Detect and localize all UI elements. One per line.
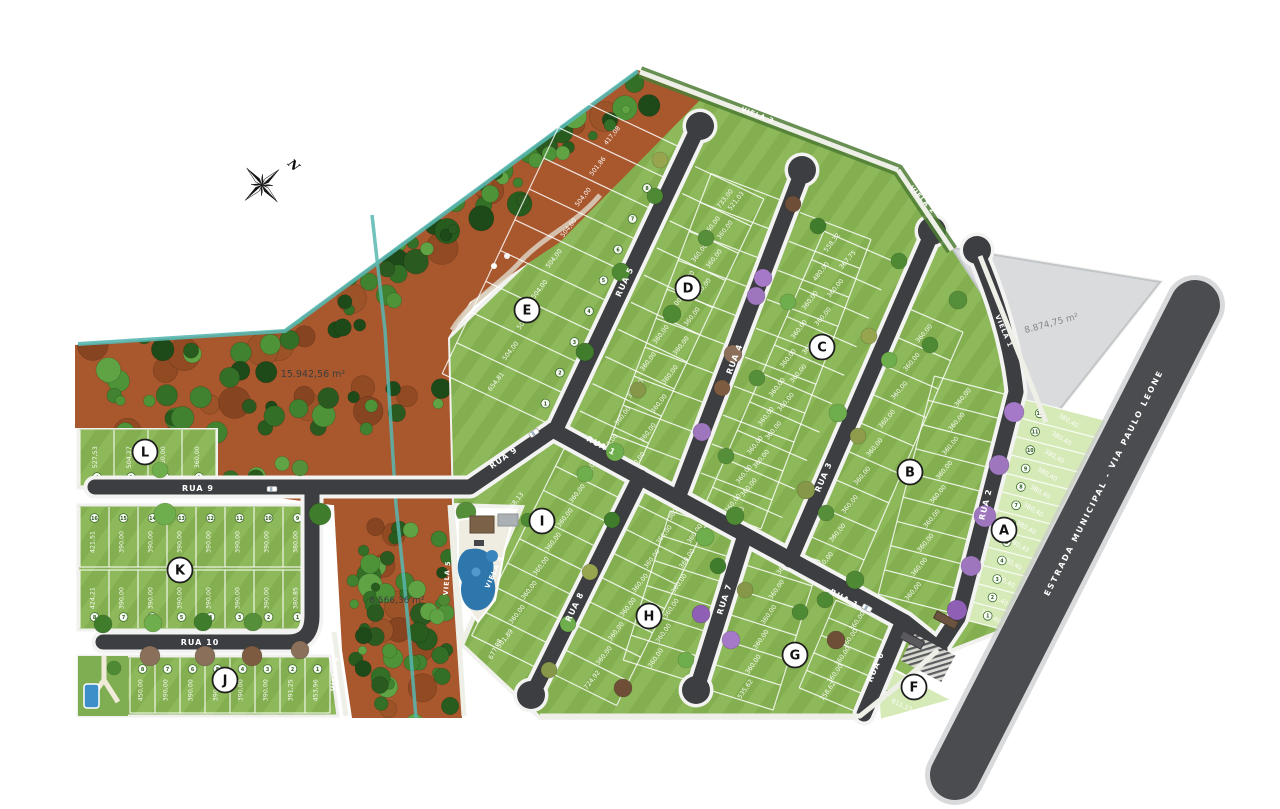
block-letter: A — [999, 524, 1009, 539]
tree-icon — [380, 551, 394, 565]
tree-icon — [334, 319, 351, 336]
tree-icon — [327, 267, 346, 286]
block-letter: E — [523, 304, 532, 319]
tree-icon — [638, 95, 660, 117]
tree-icon — [338, 295, 352, 309]
tree-icon — [171, 406, 194, 429]
tree-icon — [556, 146, 570, 160]
tree-icon — [469, 206, 494, 231]
block-letter: J — [222, 674, 228, 689]
lot-area-text: 390,00 — [177, 587, 184, 609]
tree-icon — [358, 646, 367, 655]
tree-icon — [256, 361, 277, 382]
tree-icon — [367, 605, 384, 622]
tree-icon — [190, 386, 212, 408]
tree-icon — [382, 644, 397, 659]
lot-area-text: 390,00 — [238, 679, 245, 701]
tree-icon — [275, 456, 290, 471]
tree-icon — [107, 661, 121, 675]
tree-icon — [431, 531, 447, 547]
lot-number-text: 10 — [1027, 448, 1034, 454]
tree-icon — [513, 178, 523, 188]
tree-icon — [714, 380, 730, 396]
lot-number-text: 11 — [236, 516, 243, 522]
lot-number-text: 15 — [120, 516, 127, 522]
tree-icon — [360, 422, 373, 435]
tree-icon — [96, 358, 121, 383]
preservation-area-label: 15.942,56 m² — [281, 369, 346, 380]
tree-icon — [614, 679, 632, 697]
lot-number-text: 7 — [1014, 503, 1017, 509]
tree-icon — [184, 343, 199, 358]
tree-icon — [989, 455, 1009, 475]
tree-icon — [349, 245, 368, 264]
tree-icon — [749, 370, 765, 386]
tree-icon — [152, 462, 168, 478]
leisure-structure — [474, 540, 484, 546]
tree-icon — [827, 631, 845, 649]
tree-icon — [242, 399, 256, 413]
tree-icon — [516, 194, 529, 207]
park-pool — [84, 684, 99, 708]
tree-icon — [747, 287, 765, 305]
lot-number-text: 2 — [267, 615, 270, 621]
tree-icon — [371, 583, 380, 592]
block-circle-c: C — [810, 335, 835, 360]
tree-icon — [374, 697, 388, 711]
site-plan: 527,534504,273360,002360,001421,5116390,… — [0, 0, 1280, 809]
block-circle-l: L — [133, 440, 158, 465]
car-icon — [267, 486, 277, 491]
tree-icon — [881, 352, 897, 368]
tree-icon — [309, 503, 331, 525]
tree-icon — [360, 554, 379, 573]
block-circle-b: B — [898, 460, 923, 485]
tree-icon — [140, 646, 160, 666]
lot-number-text: 3 — [573, 340, 576, 346]
tree-icon — [195, 646, 215, 666]
tree-icon — [692, 605, 710, 623]
tree-icon — [622, 105, 630, 113]
lot-number-text: 5 — [602, 278, 605, 284]
tree-icon — [949, 291, 967, 309]
tree-icon — [291, 641, 309, 659]
tree-icon — [792, 604, 808, 620]
tree-icon — [647, 188, 663, 204]
lot-number-text: 16 — [91, 516, 98, 522]
tree-icon — [115, 396, 125, 406]
tree-icon — [154, 503, 176, 525]
lot-area-text: 390,00 — [148, 587, 155, 609]
map-polygon — [245, 168, 262, 187]
tree-icon — [431, 379, 451, 399]
street-label: RUA 9 — [182, 484, 214, 493]
lot-area-text: 390,00 — [264, 587, 271, 609]
block-letter: B — [905, 466, 915, 481]
tree-icon — [151, 338, 174, 361]
block-circle-h: H — [637, 604, 662, 629]
lot-area-text: 360,00 — [194, 446, 201, 468]
soil-patch — [367, 518, 385, 536]
block-circle-j: J — [213, 668, 238, 693]
lot-number-text: 5 — [180, 615, 183, 621]
lot-number-text: 10 — [265, 516, 272, 522]
tree-icon — [861, 328, 877, 344]
block-letter: K — [175, 564, 186, 579]
tree-icon — [432, 647, 449, 664]
block-circle-a: A — [992, 518, 1017, 543]
block-letter: H — [644, 610, 655, 625]
lot-area-text: 390,00 — [119, 587, 126, 609]
block-circle-k: K — [168, 558, 193, 583]
culdesac — [788, 156, 816, 184]
pocket-park — [78, 656, 128, 716]
map-polygon — [262, 183, 279, 202]
culdesac — [963, 236, 991, 264]
tree-icon — [292, 460, 308, 476]
lot-number-text: 2 — [291, 667, 294, 673]
swimming-pool — [474, 592, 490, 608]
lot-area-text: 390,00 — [148, 531, 155, 553]
block-letter: D — [683, 282, 694, 297]
lot-area-text: 390,00 — [206, 587, 213, 609]
lot-area-text: 390,00 — [263, 679, 270, 701]
tree-icon — [355, 628, 371, 644]
tree-icon — [144, 395, 156, 407]
tree-icon — [818, 505, 834, 521]
tree-icon — [242, 646, 262, 666]
lot-area-text: 391,25 — [288, 679, 295, 701]
lot-area-text: 390,00 — [235, 531, 242, 553]
tree-icon — [354, 319, 366, 331]
tree-icon — [696, 528, 714, 546]
lot-number-text: 1 — [544, 401, 547, 407]
tree-icon — [582, 564, 598, 580]
tree-icon — [318, 388, 339, 409]
site-plan-map: 527,534504,273360,002360,001421,5116390,… — [0, 0, 1280, 809]
block-letter: C — [817, 341, 827, 356]
culdesac — [517, 681, 545, 709]
lot-number-text: 2 — [558, 371, 561, 377]
block-letter: L — [141, 446, 149, 461]
lot-number-text: 7 — [122, 615, 125, 621]
tree-icon — [482, 185, 499, 202]
tree-icon — [441, 697, 458, 714]
tree-icon — [1004, 402, 1024, 422]
lot-area-text: 390,00 — [206, 531, 213, 553]
lot-number-text: 3 — [996, 577, 999, 583]
tree-icon — [698, 230, 714, 246]
lot-number-text: 3 — [238, 615, 241, 621]
lot-number-text: 12 — [207, 516, 214, 522]
tree-icon — [576, 343, 594, 361]
street-label: RUA 10 — [181, 638, 220, 647]
tree-icon — [386, 293, 401, 308]
tree-icon — [652, 152, 668, 168]
tree-icon — [718, 448, 734, 464]
lot-number-text: 2 — [991, 595, 994, 601]
tree-icon — [722, 631, 740, 649]
tree-icon — [754, 269, 772, 287]
block-letter: I — [540, 515, 545, 530]
lot-number-text: 7 — [166, 667, 169, 673]
clubhouse-building — [470, 516, 494, 533]
lot-number-text: 3 — [266, 667, 269, 673]
block-letter: G — [790, 649, 801, 664]
lot-number-text: 1 — [316, 667, 319, 673]
block-circle-e: E — [515, 298, 540, 323]
tree-icon — [433, 399, 443, 409]
tree-icon — [372, 677, 389, 694]
lot-area-text: 453,96 — [313, 679, 320, 701]
tree-icon — [144, 614, 162, 632]
tree-icon — [663, 305, 681, 323]
tree-icon — [348, 391, 360, 403]
culdesac — [686, 112, 714, 140]
tree-icon — [264, 406, 285, 427]
lot-area-text: 380,85 — [293, 587, 300, 609]
lot-number-text: 7 — [631, 217, 634, 223]
lot-area-text: 421,51 — [90, 531, 97, 553]
tree-icon — [737, 582, 753, 598]
block-circle-f: F — [902, 675, 927, 700]
lot-area-text: 390,00 — [264, 531, 271, 553]
lot-area-text: 527,53 — [92, 446, 99, 468]
tree-icon — [350, 599, 359, 608]
compass-north-label: N — [284, 156, 303, 175]
tree-icon — [365, 400, 378, 413]
tree-icon — [379, 261, 395, 277]
lot-area-text: 380,00 — [293, 531, 300, 553]
lot-area-text: 390,00 — [163, 679, 170, 701]
tree-icon — [519, 136, 532, 149]
tree-icon — [846, 571, 864, 589]
lot-area-text: 390,00 — [188, 679, 195, 701]
culdesac — [682, 676, 710, 704]
tree-icon — [230, 342, 251, 363]
lot-number-text: 13 — [178, 516, 185, 522]
tree-icon — [810, 218, 826, 234]
lot-number-text: 11 — [1032, 429, 1039, 435]
tree-icon — [961, 556, 981, 576]
tree-icon — [947, 600, 967, 620]
block-circle-d: D — [676, 276, 701, 301]
tree-icon — [434, 668, 450, 684]
tree-icon — [829, 404, 847, 422]
tree-icon — [94, 615, 112, 633]
tree-icon — [220, 367, 240, 387]
tree-icon — [355, 661, 371, 677]
tree-icon — [577, 466, 593, 482]
map-rect — [270, 487, 273, 491]
lot-area-text: 450,00 — [138, 679, 145, 701]
lot-area-text: 390,00 — [235, 587, 242, 609]
tree-icon — [891, 253, 907, 269]
tree-icon — [604, 512, 620, 528]
map-polygon — [245, 185, 264, 202]
tree-icon — [785, 196, 801, 212]
tree-icon — [710, 558, 726, 574]
buffer-area-label: 6.566,36 m² — [369, 596, 425, 606]
block-circle-i: I — [530, 509, 555, 534]
block-circle-g: G — [783, 643, 808, 668]
lot-area-text: 390,00 — [119, 531, 126, 553]
block-letter: F — [910, 681, 919, 696]
lot-number-text: 1 — [986, 614, 989, 620]
compass-rose — [230, 153, 295, 218]
tree-icon — [430, 609, 445, 624]
tree-icon — [347, 575, 359, 587]
lot-number-text: 1 — [296, 615, 299, 621]
tree-icon — [678, 652, 694, 668]
tree-icon — [156, 385, 177, 406]
lot-area-text: 424,21 — [90, 587, 97, 609]
tree-icon — [630, 382, 646, 398]
tree-icon — [403, 522, 418, 537]
tree-icon — [922, 337, 938, 353]
lot-area-text: 390,00 — [177, 531, 184, 553]
tree-icon — [693, 423, 711, 441]
tree-icon — [726, 507, 744, 525]
tree-icon — [588, 131, 597, 140]
tree-icon — [448, 224, 458, 234]
leisure-building — [498, 514, 518, 526]
tree-icon — [541, 662, 557, 678]
tree-icon — [289, 399, 308, 418]
tree-icon — [194, 613, 212, 631]
tree-icon — [244, 613, 262, 631]
tree-icon — [850, 428, 866, 444]
tree-icon — [780, 294, 796, 310]
tree-icon — [260, 334, 280, 354]
tree-icon — [420, 242, 433, 255]
pool-highlight — [472, 568, 481, 577]
